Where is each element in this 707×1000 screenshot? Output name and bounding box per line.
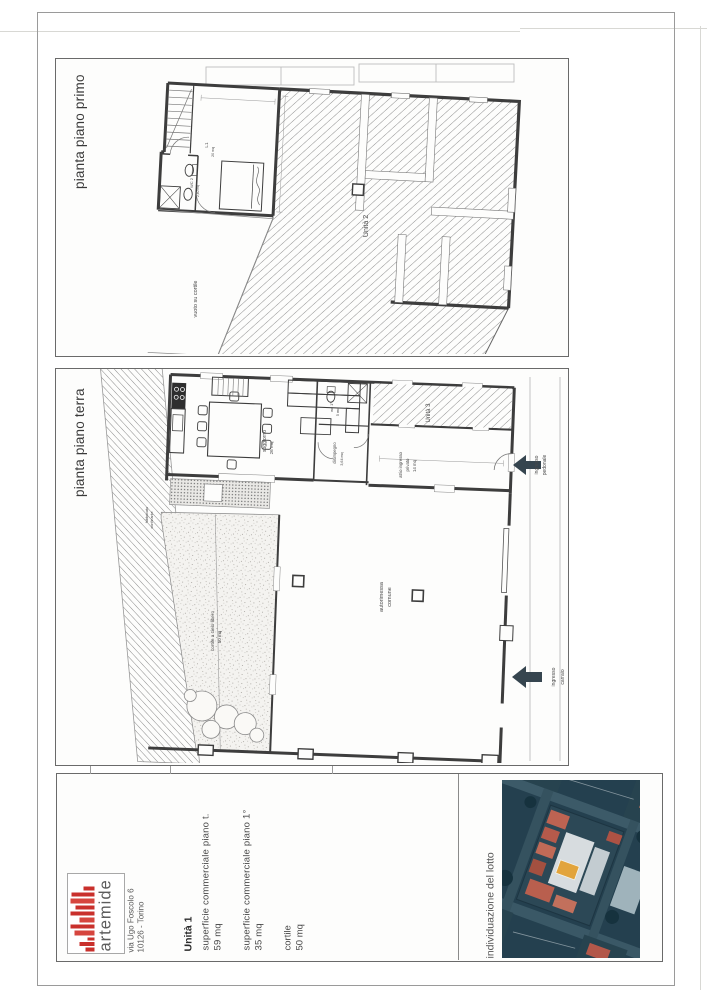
floor-plan-piano-primo: Unità 2 vuoto su cortile L1 20 mq WC 2 2… xyxy=(56,59,567,354)
surface-ground-label: superficie commerciale piano t. xyxy=(201,781,213,951)
artemide-logo-bars xyxy=(70,883,94,951)
label-soggiorno-mq: 26 mq xyxy=(269,441,274,454)
label-room-l1: L1 xyxy=(204,142,209,148)
surface-row-cortile: cortile 50 mq xyxy=(283,907,308,951)
scan-tick xyxy=(90,766,91,774)
cortile-label: cortile xyxy=(283,907,295,951)
label-atrio-3: 14 mq xyxy=(412,459,417,472)
artemide-logo: artemide xyxy=(67,873,125,954)
title-block-divider xyxy=(458,774,459,960)
address-line-1: via Ugo Foscolo 6 xyxy=(127,869,137,953)
artemide-logo-text: artemide xyxy=(96,879,115,951)
surface-first-label: superficie commerciale piano 1° xyxy=(242,781,254,951)
pillar xyxy=(412,590,423,601)
grate-box xyxy=(204,484,223,502)
label-unita2: Unità 2 xyxy=(363,215,370,237)
label-carraio-2: carraio xyxy=(560,669,566,685)
label-carraio-1: ingresso xyxy=(551,667,557,686)
surface-first-value: 35 mq xyxy=(254,781,266,951)
surface-row-ground: superficie commerciale piano t. 59 mq xyxy=(201,781,226,951)
label-autorimessa-1: autorimessa xyxy=(379,581,385,612)
scan-tick xyxy=(170,766,171,774)
label-disimpegno-mq: 3,64 mq xyxy=(340,452,344,465)
floor-plan-piano-terra: Unità 3 atrio ingresso privato 14 mq sog… xyxy=(56,369,567,763)
company-address: via Ugo Foscolo 6 10126 - Torino xyxy=(127,869,148,953)
label-wc1-mq: 5 mq xyxy=(336,408,340,416)
right-lot-wall xyxy=(495,493,518,763)
label-wc1: wc 1° xyxy=(329,402,334,412)
address-line-2: 10126 - Torino xyxy=(137,869,147,953)
scanned-plan-sheet: pianta piano primo xyxy=(0,0,707,1000)
label-wc2-mq: 2,60 mq xyxy=(196,185,200,197)
label-confine-2: confinante xyxy=(150,511,154,528)
scan-tick xyxy=(332,766,333,774)
label-disimpegno: disimpegno xyxy=(332,442,337,464)
unit-title: Unità 1 xyxy=(183,904,196,952)
label-room-l1-mq: 20 mq xyxy=(211,147,215,157)
surface-ground-value: 59 mq xyxy=(213,781,225,951)
scan-line xyxy=(700,26,701,990)
label-pedonale-2: pedonale xyxy=(542,454,548,475)
label-unita3: Unità 3 xyxy=(426,403,432,423)
pillar xyxy=(293,575,304,586)
stairs xyxy=(165,88,192,149)
label-pedonale-1: ingresso xyxy=(534,455,540,474)
street-lines xyxy=(530,377,560,761)
unita1-floor1 xyxy=(158,83,279,216)
label-vuoto-su-cortile: vuoto su cortile xyxy=(193,281,199,318)
label-autorimessa-2: comune xyxy=(387,587,393,607)
label-soggiorno: soggiorno xyxy=(262,430,268,452)
label-wc2: WC 2 xyxy=(189,177,194,188)
unita3-hatched-area xyxy=(373,383,512,428)
label-confine-1: fabbricato xyxy=(145,507,149,523)
aerial-photo xyxy=(502,780,640,958)
surface-row-first: superficie commerciale piano 1° 35 mq xyxy=(242,781,267,951)
label-atrio-1: atrio ingresso xyxy=(398,451,403,477)
wc1-fixtures xyxy=(327,383,368,404)
label-cortile-1: cortile a cielo libero xyxy=(210,611,215,652)
label-cortile-2: 50 mq xyxy=(217,630,222,643)
bed xyxy=(219,161,263,211)
neighbor-outline xyxy=(206,64,514,85)
pillar xyxy=(352,184,364,196)
ingresso-carraio-arrow xyxy=(512,666,542,688)
cortile-value: 50 mq xyxy=(295,907,307,951)
lotto-label: individuazione del lotto xyxy=(485,839,498,959)
label-atrio-2: privato xyxy=(405,458,410,472)
